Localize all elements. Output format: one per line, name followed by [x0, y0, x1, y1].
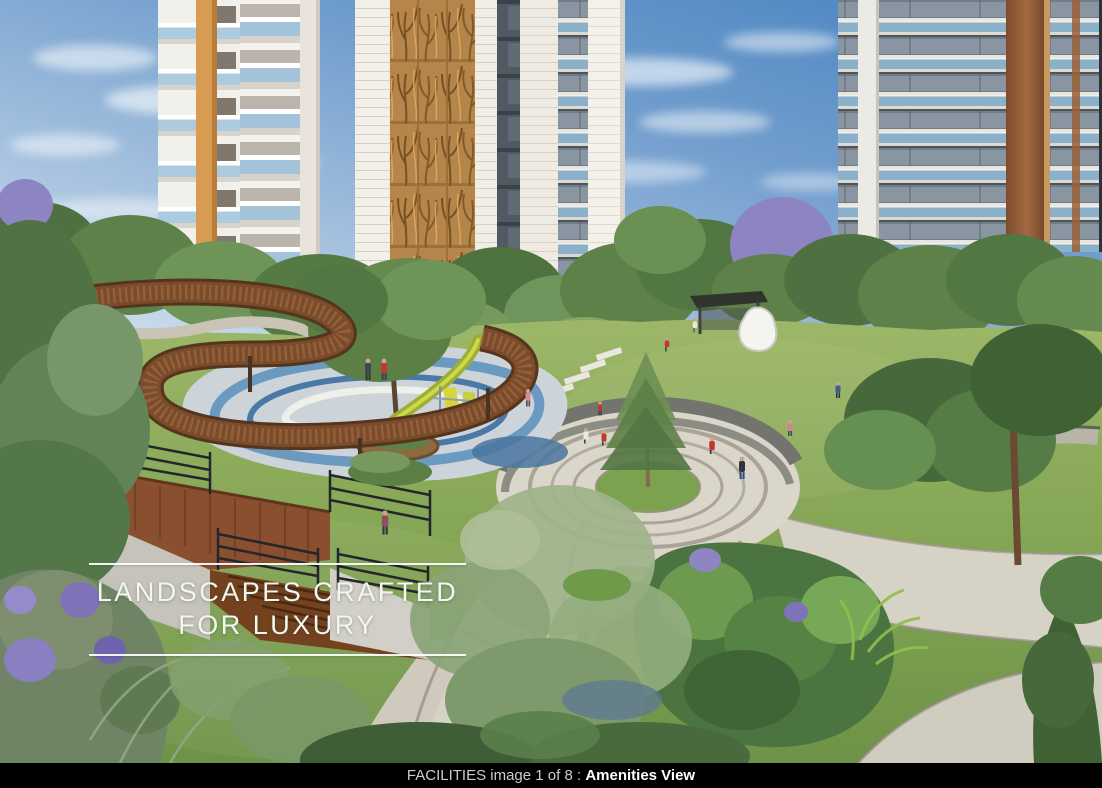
- overlay-title-line2: FOR LUXURY: [89, 609, 466, 641]
- caption-gallery-position: FACILITIES image 1 of 8 :: [407, 763, 585, 788]
- image-caption-bar: FACILITIES image 1 of 8 : Amenities View: [0, 763, 1102, 788]
- overlay-rule-bottom: [89, 654, 466, 656]
- round-shrub: [563, 569, 631, 601]
- overlay-title-line1: LANDSCAPES CRAFTED: [89, 576, 466, 608]
- overlay-rule-top: [89, 563, 466, 565]
- caption-image-title: Amenities View: [585, 763, 695, 788]
- tower-right: [838, 0, 1102, 258]
- screenshot-root: LANDSCAPES CRAFTED FOR LUXURY FACILITIES…: [0, 0, 1102, 788]
- tower-left: [158, 0, 320, 268]
- image-text-overlay: LANDSCAPES CRAFTED FOR LUXURY: [89, 563, 466, 656]
